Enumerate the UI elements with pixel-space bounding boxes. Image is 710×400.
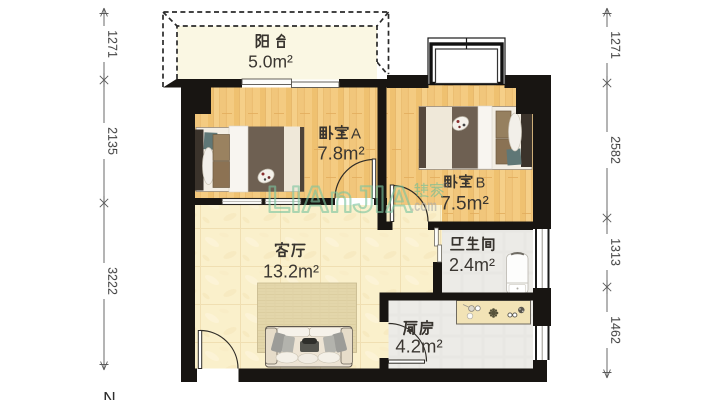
svg-text:2582: 2582: [608, 136, 622, 164]
svg-text:5.0m²: 5.0m²: [248, 52, 293, 72]
svg-text:.com: .com: [411, 198, 437, 215]
svg-text:A: A: [351, 126, 361, 143]
svg-text:13.2m²: 13.2m²: [263, 262, 319, 282]
svg-text:4.2m²: 4.2m²: [395, 336, 442, 357]
svg-text:2.4m²: 2.4m²: [449, 255, 495, 275]
svg-text:B: B: [476, 176, 486, 192]
svg-text:1271: 1271: [608, 31, 622, 59]
svg-text:LIAnJIA: LIAnJIA: [267, 179, 413, 220]
svg-text:7.5m²: 7.5m²: [440, 194, 489, 215]
svg-text:7.8m²: 7.8m²: [317, 143, 364, 164]
svg-text:1313: 1313: [608, 238, 622, 266]
svg-text:N: N: [103, 388, 116, 400]
svg-text:1462: 1462: [608, 316, 622, 344]
svg-text:2135: 2135: [105, 127, 119, 155]
svg-text:1271: 1271: [105, 30, 119, 58]
svg-text:3222: 3222: [105, 267, 119, 295]
